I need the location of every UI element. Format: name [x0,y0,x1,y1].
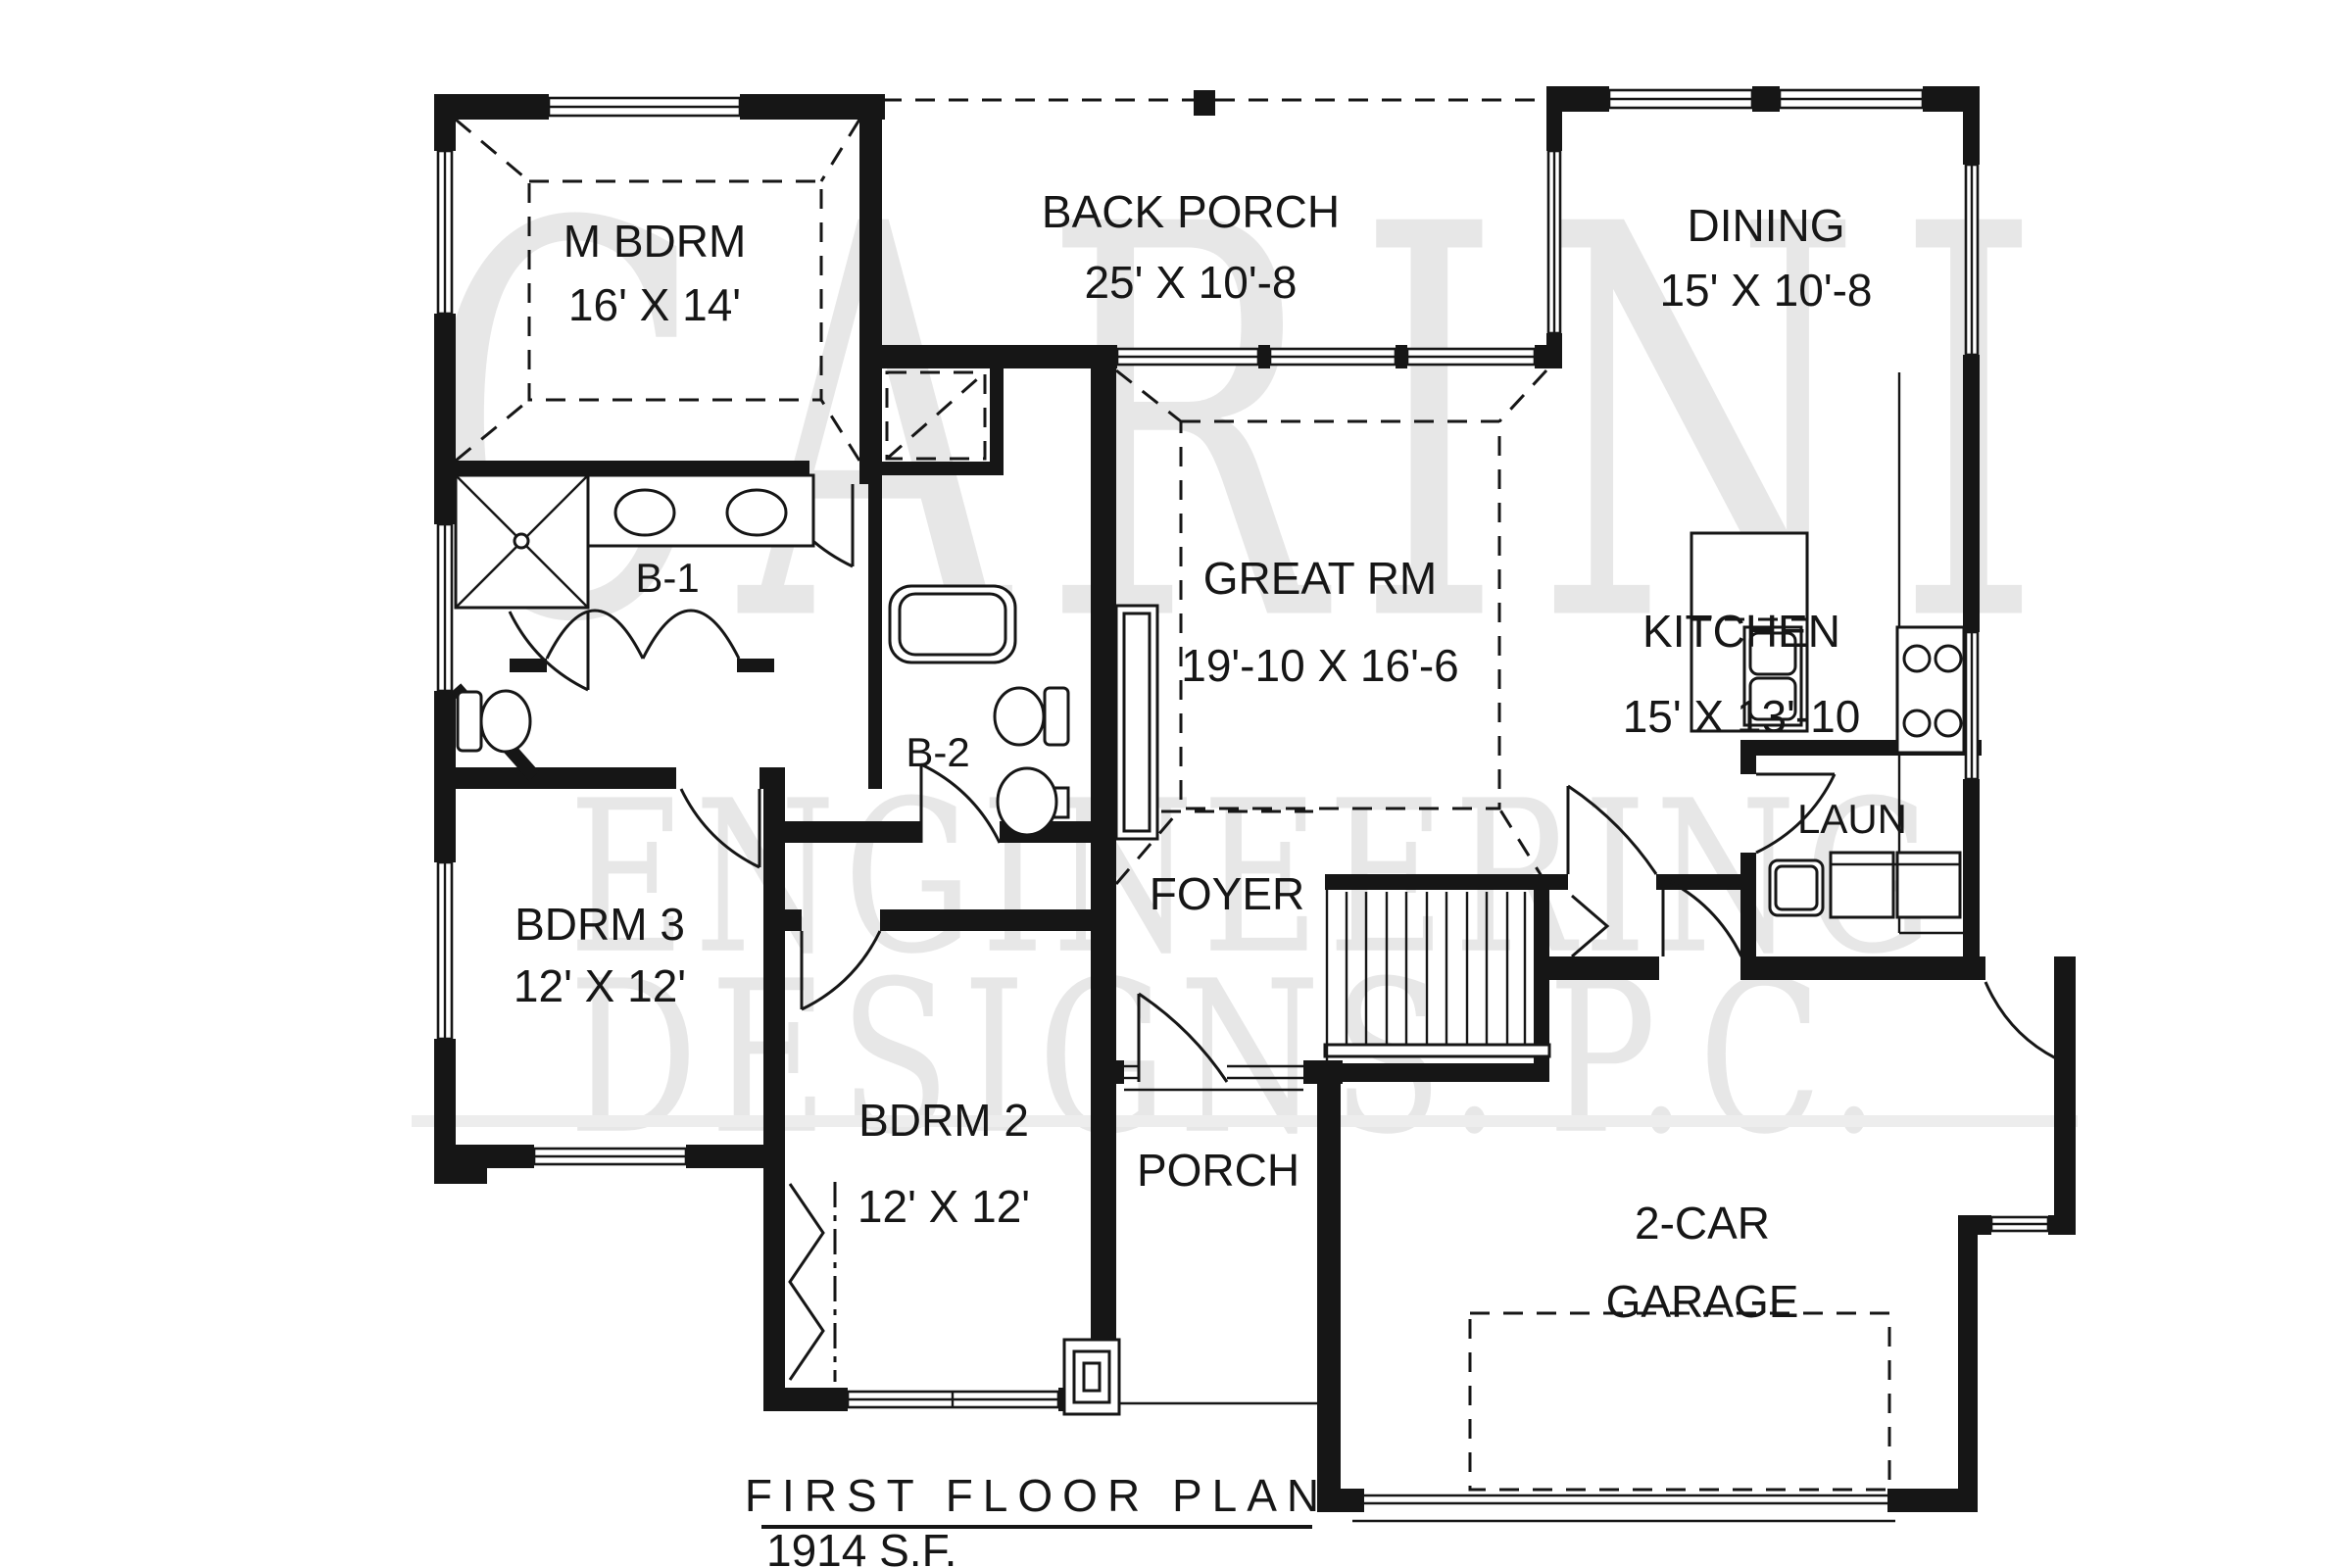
room-label-kitchen: KITCHEN [1642,606,1840,657]
room-label-garage-line1: 2-CAR [1635,1198,1770,1249]
title-block: FIRST FLOOR PLAN 1914 S.F. [745,1470,1329,1568]
floor-plan-page: CARINI ENGINEERING DESIGNS. P.C. [0,0,2352,1568]
room-dims-m-bdrm: 16' X 14' [568,279,741,330]
room-label-bdrm2: BDRM 2 [858,1095,1029,1146]
room-label-dining: DINING [1688,200,1845,251]
toilet-b2 [995,688,1068,745]
washer-dryer [1831,853,1960,917]
room-label-back-porch: BACK PORCH [1042,186,1340,237]
door-bath2 [921,764,1000,843]
plan-title: FIRST FLOOR PLAN [745,1470,1329,1521]
bathtub-b2 [890,586,1015,662]
room-dims-back-porch: 25' X 10'-8 [1084,257,1297,308]
door-bdrm2 [802,931,880,1009]
door-shower [510,612,588,690]
garage-door [1352,1495,1895,1521]
room-label-porch: PORCH [1137,1145,1299,1196]
porch-column [1064,1340,1317,1414]
room-label-m-bdrm: M BDRM [563,216,747,267]
door-kitchen-hall [1568,786,1656,874]
room-dims-bdrm2: 12' X 12' [857,1181,1030,1232]
stairs [1325,890,1549,1063]
door-bdrm3 [681,789,759,867]
attic-access-dashed [887,372,985,459]
floor-plan-drawing: M BDRM 16' X 14' BACK PORCH 25' X 10'-8 … [0,0,2352,1568]
tray-ceiling-great-rm [1116,370,1546,884]
shower [456,475,588,608]
media-niche-great-rm [1116,606,1157,839]
door-garage-side [1985,980,2056,1058]
room-label-great-rm: GREAT RM [1203,553,1438,604]
room-label-foyer: FOYER [1150,868,1304,919]
vanity-double-sinks [588,475,813,546]
room-label-garage-line2: GARAGE [1606,1276,1799,1327]
room-dims-kitchen: 15' X 13'-10 [1623,691,1861,742]
toilet-b1 [458,691,530,752]
bifold-closet-hall [1572,896,1607,956]
front-door [1124,994,1303,1090]
closet-double-doors-b1 [547,611,739,659]
room-dims-great-rm: 19'-10 X 16'-6 [1181,640,1459,691]
cooktop [1897,627,1964,753]
laundry-sink [1770,860,1823,915]
bifold-closet-bdrm2 [790,1182,835,1382]
plan-area: 1914 S.F. [766,1525,956,1568]
room-label-bdrm3: BDRM 3 [514,899,685,950]
room-dims-bdrm3: 12' X 12' [514,960,686,1011]
room-label-b1: B-1 [635,555,699,601]
porch-post [1194,90,1215,116]
garage-ceiling-dashed [1470,1313,1889,1490]
room-label-laun: LAUN [1797,796,1907,842]
room-label-b2: B-2 [906,729,969,775]
room-dims-dining: 15' X 10'-8 [1659,265,1872,316]
